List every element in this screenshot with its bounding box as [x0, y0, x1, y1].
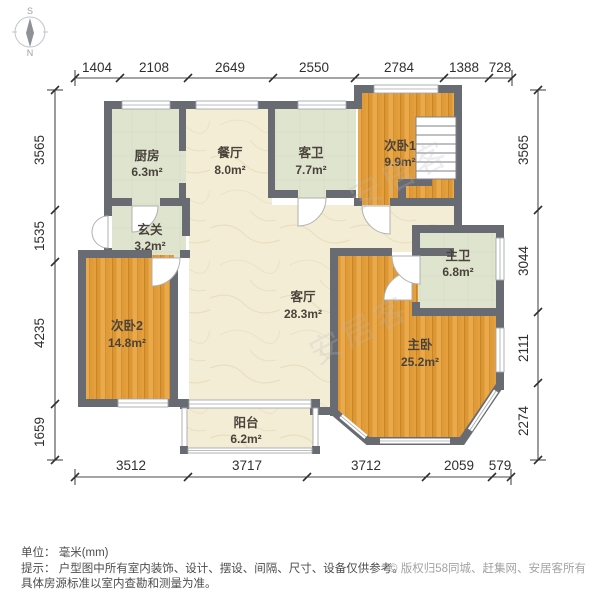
room-area-bedroom2: 14.8m²	[108, 336, 146, 350]
dimension-right: 3565 3044 2111 2274	[516, 86, 546, 464]
copyright-notice: © 版权归58同城、赶集网、安居客所有	[389, 560, 586, 576]
dim-bottom-4: 579	[489, 458, 512, 473]
room-label-living: 客厅	[289, 289, 316, 304]
dim-top-3: 2550	[299, 60, 329, 75]
room-label-balcony: 阳台	[233, 415, 258, 430]
room-label-kitchen: 厨房	[134, 148, 159, 163]
compass-north-label: N	[27, 48, 34, 58]
room-label-bedroom2: 次卧2	[111, 318, 143, 333]
room-label-foyer: 玄关	[137, 222, 163, 237]
dim-right-2: 2111	[516, 334, 531, 362]
master-bath-window	[496, 238, 504, 280]
dim-bottom-0: 3512	[116, 458, 146, 473]
dim-bottom-1: 3717	[232, 458, 262, 473]
dim-bottom-2: 3712	[351, 458, 381, 473]
dim-top-2: 2649	[215, 60, 245, 75]
dim-right-1: 3044	[516, 245, 531, 276]
compass-south-label: S	[27, 6, 33, 16]
dim-left-2: 4235	[32, 318, 47, 348]
kitchen-window	[122, 101, 170, 109]
compass-icon: S N	[12, 6, 48, 58]
room-area-dining: 8.0m²	[214, 163, 245, 177]
master-bedroom-side-window	[496, 328, 504, 372]
dim-top-6: 728	[489, 60, 512, 75]
room-area-kitchen: 6.3m²	[131, 165, 162, 179]
room-label-master-bath: 主卫	[445, 248, 471, 263]
dimension-top: 1404 2108 2649 2550 2784 1388 728	[71, 60, 516, 86]
dim-bottom-3: 2059	[444, 458, 474, 473]
dining-window	[196, 101, 258, 109]
entrance-door	[92, 216, 108, 248]
bedroom2-window	[118, 399, 168, 407]
room-area-foyer: 3.2m²	[134, 239, 165, 253]
dim-right-0: 3565	[516, 135, 531, 165]
dim-left-3: 1659	[32, 417, 47, 447]
room-label-dining: 餐厅	[216, 145, 243, 160]
footer-tip-line1: 提示： 户型图中所有室内装饰、设计、摆设、间隔、尺寸、设备仅供参考。	[21, 562, 404, 577]
floorplan-page: 厨房 6.3m² 餐厅 8.0m² 客卫 7.7m² 次卧1 9.9m² 玄关 …	[0, 0, 600, 600]
room-area-living: 28.3m²	[284, 307, 322, 321]
room-label-master-bedroom: 主卧	[407, 337, 433, 352]
room-area-master-bedroom: 25.2m²	[401, 355, 439, 369]
dim-top-4: 2784	[384, 60, 415, 75]
room-area-balcony: 6.2m²	[230, 432, 261, 446]
room-area-master-bath: 6.8m²	[442, 265, 473, 279]
dim-left-1: 1535	[32, 221, 47, 251]
room-label-guest-bath: 客卫	[297, 145, 324, 160]
footer-tip-line2: 具体房源标准以室内查勘和测量为准。	[21, 577, 217, 592]
dim-right-3: 2274	[516, 405, 531, 436]
dimension-bottom: 3512 3717 3712 2059 579	[71, 458, 515, 485]
room-area-guest-bath: 7.7m²	[295, 163, 326, 177]
dimension-left: 3565 1535 4235 1659	[32, 86, 63, 464]
bedroom1-window	[374, 85, 438, 93]
dim-top-1: 2108	[139, 60, 169, 75]
dim-top-5: 1388	[449, 60, 479, 75]
guest-bath-window	[298, 101, 346, 109]
floorplan-drawing: 厨房 6.3m² 餐厅 8.0m² 客卫 7.7m² 次卧1 9.9m² 玄关 …	[0, 0, 600, 600]
dim-left-0: 3565	[32, 135, 47, 165]
dim-top-0: 1404	[82, 60, 113, 75]
footer-unit-note: 单位： 毫米(mm)	[21, 546, 109, 561]
